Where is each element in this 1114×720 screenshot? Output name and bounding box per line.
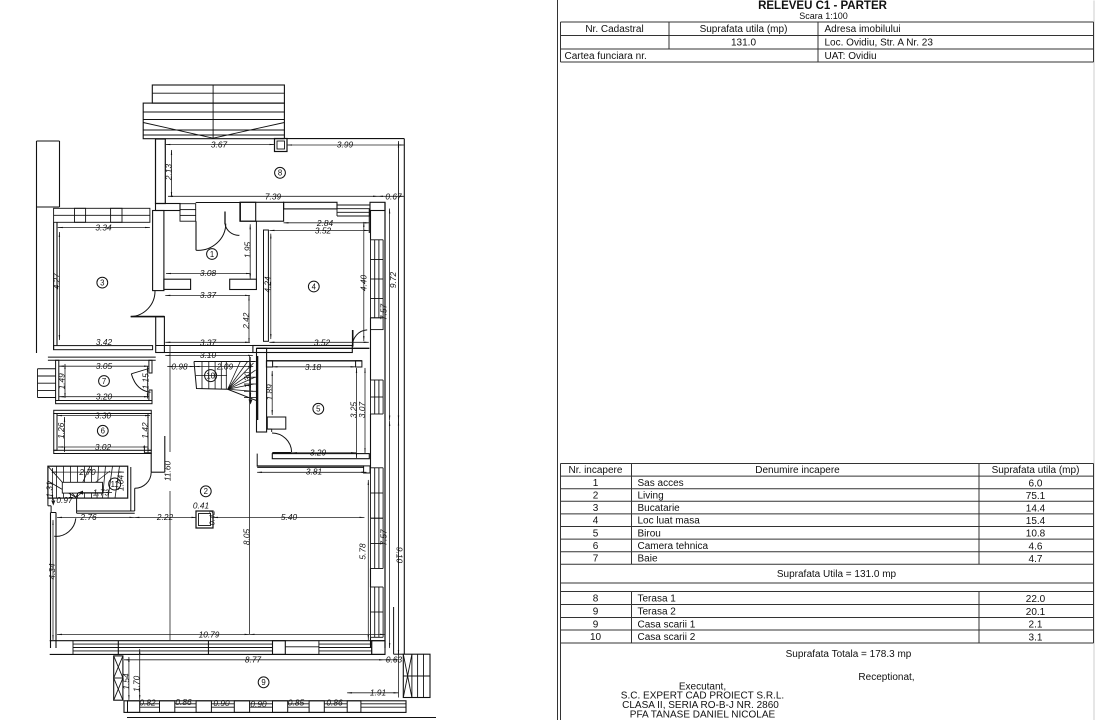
svg-text:8.77: 8.77 <box>245 655 262 665</box>
svg-text:6: 6 <box>101 427 105 436</box>
svg-text:11.60: 11.60 <box>163 461 173 482</box>
svg-text:3.42: 3.42 <box>96 337 113 347</box>
svg-text:Nr. incapere: Nr. incapere <box>569 465 623 476</box>
svg-text:5: 5 <box>316 405 321 414</box>
svg-text:4.24: 4.24 <box>263 276 273 293</box>
svg-text:10.79: 10.79 <box>199 629 220 639</box>
svg-text:Terasa 2: Terasa 2 <box>638 607 677 618</box>
svg-text:0.86: 0.86 <box>326 698 343 708</box>
svg-text:0.67: 0.67 <box>385 191 402 201</box>
svg-text:9: 9 <box>593 619 599 630</box>
svg-text:3.29: 3.29 <box>310 447 327 457</box>
svg-text:1.89: 1.89 <box>264 384 274 401</box>
svg-text:0.97: 0.97 <box>56 495 73 505</box>
svg-text:Terasa 1: Terasa 1 <box>638 594 677 605</box>
svg-text:10: 10 <box>206 371 215 380</box>
svg-text:0.90: 0.90 <box>213 698 230 708</box>
svg-text:1.91: 1.91 <box>370 688 386 698</box>
svg-text:75.1: 75.1 <box>1026 491 1046 502</box>
svg-text:Camera tehnica: Camera tehnica <box>638 541 709 552</box>
svg-text:Adresa imobilului: Adresa imobilului <box>825 24 901 35</box>
svg-text:3.02: 3.02 <box>95 442 112 452</box>
svg-text:0.82: 0.82 <box>139 697 156 707</box>
svg-text:PFA TANASE DANIEL NICOLAE: PFA TANASE DANIEL NICOLAE <box>630 710 776 720</box>
svg-text:3.37: 3.37 <box>200 290 217 300</box>
svg-text:Suprafata utila (mp): Suprafata utila (mp) <box>992 465 1080 476</box>
svg-text:3.52: 3.52 <box>314 337 331 347</box>
svg-text:3.81: 3.81 <box>306 467 322 477</box>
svg-text:7: 7 <box>593 554 599 565</box>
svg-text:7.57: 7.57 <box>379 304 389 321</box>
svg-text:2.76: 2.76 <box>79 512 97 522</box>
svg-text:9: 9 <box>261 678 265 687</box>
svg-text:1.54: 1.54 <box>121 673 131 690</box>
svg-text:Suprafata utila (mp): Suprafata utila (mp) <box>700 24 788 35</box>
svg-text:0.90: 0.90 <box>250 699 267 709</box>
svg-text:0.86: 0.86 <box>175 697 192 707</box>
svg-text:131.0: 131.0 <box>731 38 756 49</box>
svg-text:3.52: 3.52 <box>315 226 332 236</box>
svg-text:5.40: 5.40 <box>281 512 298 522</box>
svg-text:Living: Living <box>638 491 664 502</box>
svg-text:1.42: 1.42 <box>140 422 150 439</box>
svg-text:0.85: 0.85 <box>288 698 305 708</box>
svg-text:Casa scarii 2: Casa scarii 2 <box>638 632 696 643</box>
svg-text:0.98: 0.98 <box>171 362 188 372</box>
svg-text:3.10: 3.10 <box>200 350 217 360</box>
svg-text:1: 1 <box>210 250 214 259</box>
svg-text:Casa scarii 1: Casa scarii 1 <box>638 619 696 630</box>
svg-text:8.05: 8.05 <box>241 529 251 546</box>
svg-text:Bucatarie: Bucatarie <box>638 503 681 514</box>
svg-text:1: 1 <box>593 478 599 489</box>
svg-text:3.08: 3.08 <box>200 268 217 278</box>
svg-text:1.95: 1.95 <box>242 242 252 259</box>
svg-text:7.57: 7.57 <box>379 529 389 546</box>
svg-text:Birou: Birou <box>638 528 661 539</box>
svg-text:2.70: 2.70 <box>78 467 96 477</box>
svg-text:6: 6 <box>593 541 599 552</box>
svg-text:1.26: 1.26 <box>56 422 66 439</box>
svg-text:1.31: 1.31 <box>44 481 54 497</box>
svg-text:3.34: 3.34 <box>95 223 112 233</box>
svg-text:4.34: 4.34 <box>47 563 57 580</box>
svg-text:4.27: 4.27 <box>51 273 61 290</box>
svg-text:0.63: 0.63 <box>386 654 403 664</box>
svg-text:10.8: 10.8 <box>1026 529 1046 540</box>
svg-text:2.09: 2.09 <box>216 362 234 372</box>
svg-text:1.73: 1.73 <box>93 487 110 497</box>
svg-text:10: 10 <box>590 632 602 643</box>
svg-text:4.40: 4.40 <box>358 275 368 292</box>
svg-text:3.07: 3.07 <box>357 402 367 419</box>
svg-text:Baie: Baie <box>638 554 658 565</box>
svg-text:1.15: 1.15 <box>141 373 151 390</box>
svg-text:7.39: 7.39 <box>265 191 282 201</box>
svg-text:Cartea funciara nr.: Cartea funciara nr. <box>565 51 647 62</box>
svg-text:3.67: 3.67 <box>211 140 228 150</box>
svg-text:5.78: 5.78 <box>357 543 367 560</box>
svg-text:3.99: 3.99 <box>337 140 354 150</box>
svg-text:15.4: 15.4 <box>1026 516 1046 527</box>
svg-text:4: 4 <box>312 282 317 291</box>
svg-text:2: 2 <box>204 487 208 496</box>
svg-text:2.42: 2.42 <box>241 312 251 330</box>
svg-text:Suprafata Utila = 131.0 mp: Suprafata Utila = 131.0 mp <box>777 569 897 580</box>
svg-text:7: 7 <box>102 377 106 386</box>
svg-text:Loc. Ovidiu, Str. A Nr. 23: Loc. Ovidiu, Str. A Nr. 23 <box>825 38 934 49</box>
svg-text:2.1: 2.1 <box>1029 620 1043 631</box>
svg-text:Nr. Cadastral: Nr. Cadastral <box>585 24 643 35</box>
svg-text:2: 2 <box>593 491 599 502</box>
svg-text:3.05: 3.05 <box>96 361 113 371</box>
svg-text:3: 3 <box>593 503 599 514</box>
svg-text:14.4: 14.4 <box>1026 504 1046 515</box>
svg-text:0.41: 0.41 <box>193 500 209 510</box>
svg-text:Sas acces: Sas acces <box>638 478 684 489</box>
svg-text:Suprafata Totala = 178.3 mp: Suprafata Totala = 178.3 mp <box>786 649 912 660</box>
svg-text:Scara 1:100: Scara 1:100 <box>799 11 848 21</box>
svg-text:4.6: 4.6 <box>1029 541 1043 552</box>
svg-text:1.70: 1.70 <box>132 675 142 692</box>
svg-text:3: 3 <box>100 278 104 287</box>
svg-text:Loc luat masa: Loc luat masa <box>638 516 701 527</box>
svg-text:3.1: 3.1 <box>1029 633 1043 644</box>
svg-text:2.13: 2.13 <box>163 164 173 182</box>
svg-text:UAT: Ovidiu: UAT: Ovidiu <box>825 51 877 62</box>
svg-text:3.18: 3.18 <box>305 362 322 372</box>
svg-text:9: 9 <box>593 607 599 618</box>
svg-text:Receptionat,: Receptionat, <box>858 672 914 683</box>
svg-text:2.22: 2.22 <box>156 512 174 522</box>
svg-text:3.37: 3.37 <box>200 337 217 347</box>
svg-text:9.10: 9.10 <box>395 547 405 564</box>
svg-text:11: 11 <box>111 480 119 489</box>
svg-text:20.1: 20.1 <box>1026 607 1046 618</box>
svg-text:5: 5 <box>593 528 599 539</box>
svg-text:4.7: 4.7 <box>1029 554 1043 565</box>
svg-text:0.42: 0.42 <box>208 510 217 525</box>
svg-text:6.0: 6.0 <box>1029 478 1043 489</box>
svg-text:9.72: 9.72 <box>388 272 398 289</box>
svg-text:3.20: 3.20 <box>96 392 113 402</box>
svg-text:4: 4 <box>593 516 599 527</box>
svg-text:Denumire incapere: Denumire incapere <box>755 465 840 476</box>
svg-text:3.30: 3.30 <box>95 411 112 421</box>
svg-text:1.49: 1.49 <box>57 373 67 390</box>
svg-text:1.30: 1.30 <box>243 372 253 389</box>
svg-text:8: 8 <box>593 594 599 605</box>
svg-text:22.0: 22.0 <box>1026 594 1046 605</box>
svg-text:8: 8 <box>278 169 282 178</box>
